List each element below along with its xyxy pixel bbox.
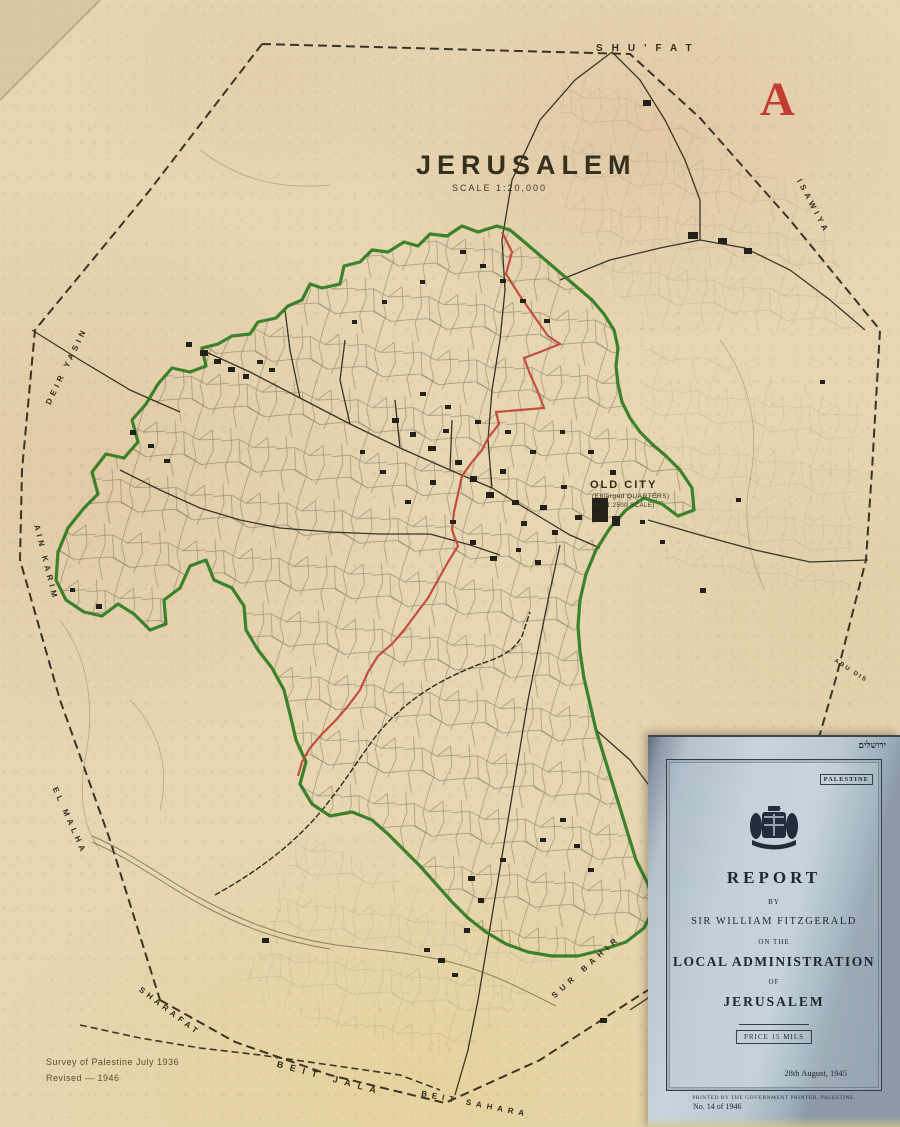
report-cover-inset: ירושלים PALESTINE REPORT BY SIR WILLIAM bbox=[648, 735, 900, 1127]
survey-credit-line1: Survey of Palestine July 1936 bbox=[46, 1058, 179, 1067]
cover-title: REPORT bbox=[667, 868, 881, 888]
cover-of: OF bbox=[667, 978, 881, 986]
royal-coat-of-arms-icon bbox=[748, 804, 800, 852]
cover-subject-line2: JERUSALEM bbox=[667, 994, 881, 1010]
map-title: JERUSALEM bbox=[416, 152, 637, 179]
old-city-sublabel-2: (ON 1:2500 SCALE) bbox=[592, 503, 655, 509]
price-rule bbox=[739, 1024, 809, 1025]
cover-by: BY bbox=[667, 898, 881, 906]
fold-crease bbox=[0, 0, 100, 100]
printer-imprint: PRINTED BY THE GOVERNMENT PRINTER, PALES… bbox=[648, 1095, 900, 1101]
palestine-badge: PALESTINE bbox=[820, 774, 873, 785]
cover-border-frame: PALESTINE REPORT BY SIR WILLIAM FITZGERA… bbox=[666, 759, 882, 1091]
survey-credit-line2: Revised — 1946 bbox=[46, 1074, 120, 1083]
sheet-letter-a: A bbox=[760, 76, 795, 124]
cover-subject-line1: LOCAL ADMINISTRATION bbox=[667, 954, 881, 970]
old-city-label: OLD CITY bbox=[590, 480, 657, 491]
map-scale-note: SCALE 1:20,000 bbox=[452, 184, 547, 193]
cover-on-the: ON THE bbox=[667, 938, 881, 946]
price-box: PRICE 15 MILS bbox=[736, 1030, 812, 1044]
cover-number: No. 14 of 1946 bbox=[667, 1102, 881, 1111]
cover-author: SIR WILLIAM FITZGERALD bbox=[667, 916, 881, 927]
hebrew-jerusalem-label: ירושלים bbox=[858, 740, 886, 750]
map-scan: JERUSALEM SCALE 1:20,000 A SHU'FAT DEIR … bbox=[0, 0, 900, 1127]
city-parcel-texture bbox=[56, 226, 694, 956]
village-label-shufat: SHU'FAT bbox=[596, 44, 701, 54]
old-city-sublabel-1: (Enlarged QUARTERS) bbox=[592, 494, 670, 501]
cover-date: 28th August, 1945 bbox=[667, 1068, 881, 1078]
